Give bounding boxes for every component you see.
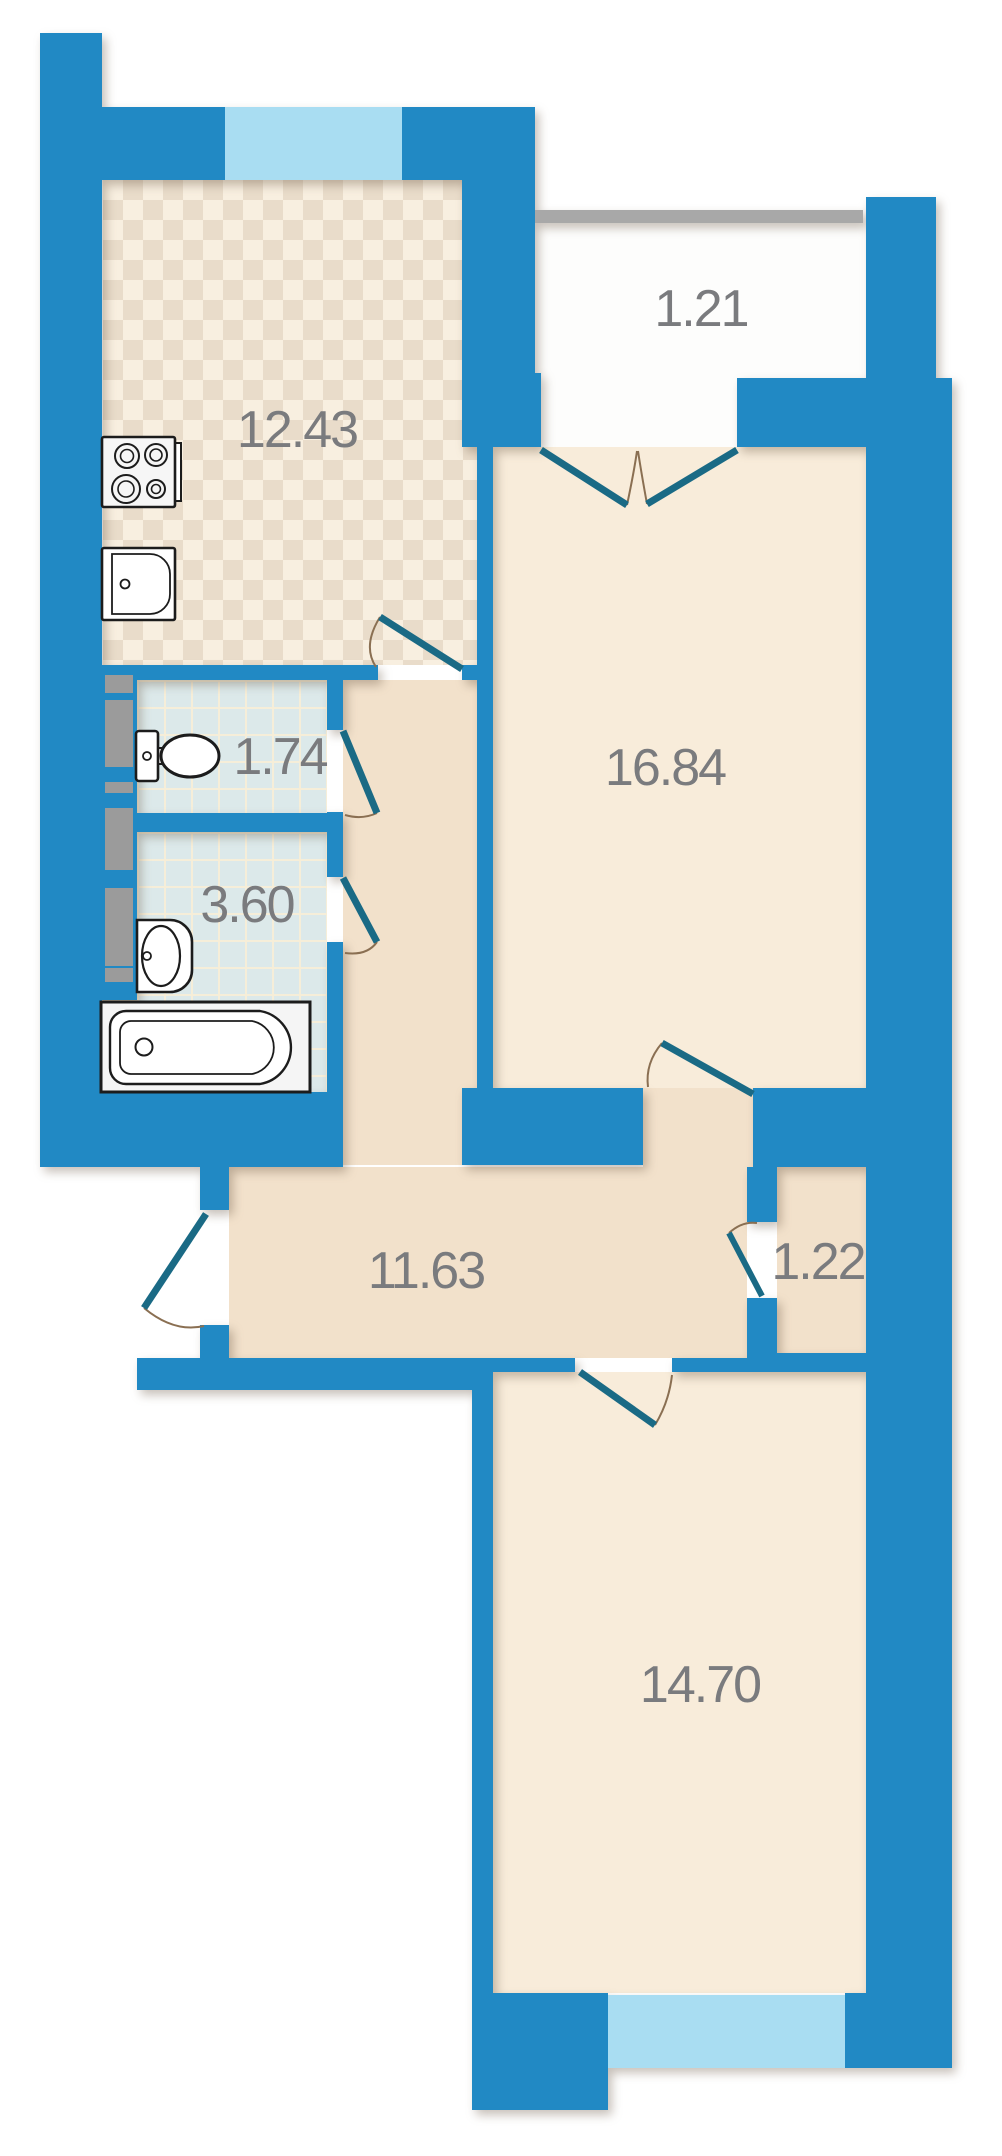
wc-door — [343, 731, 377, 817]
entrance-door — [144, 1214, 206, 1328]
fixtures-doors-overlay — [0, 0, 1002, 2156]
washbasin-icon — [137, 920, 192, 992]
living-room-area-label: 16.84 — [605, 742, 725, 794]
storage-door — [729, 1223, 762, 1296]
kitchen-area-label: 12.43 — [237, 404, 357, 456]
kitchen-door — [370, 617, 462, 669]
toilet-icon — [136, 731, 219, 781]
bedroom-area-label: 14.70 — [640, 1659, 760, 1711]
living-room-door — [648, 1043, 753, 1094]
floor-plan: 12.43 1.21 16.84 1.74 3.60 11.63 1.22 14… — [0, 0, 1002, 2156]
wc-area-label: 1.74 — [233, 731, 326, 783]
bathtub-icon — [101, 1002, 310, 1092]
balcony-door — [541, 450, 737, 505]
bathroom-area-label: 3.60 — [200, 879, 293, 931]
kitchen-sink-icon — [102, 548, 175, 620]
balcony-area-label: 1.21 — [654, 283, 747, 335]
storage-area-label: 1.22 — [771, 1236, 864, 1288]
stove-icon — [102, 437, 181, 507]
bathroom-door — [343, 878, 377, 954]
bedroom-door — [580, 1372, 672, 1425]
hallway-area-label: 11.63 — [368, 1245, 484, 1297]
